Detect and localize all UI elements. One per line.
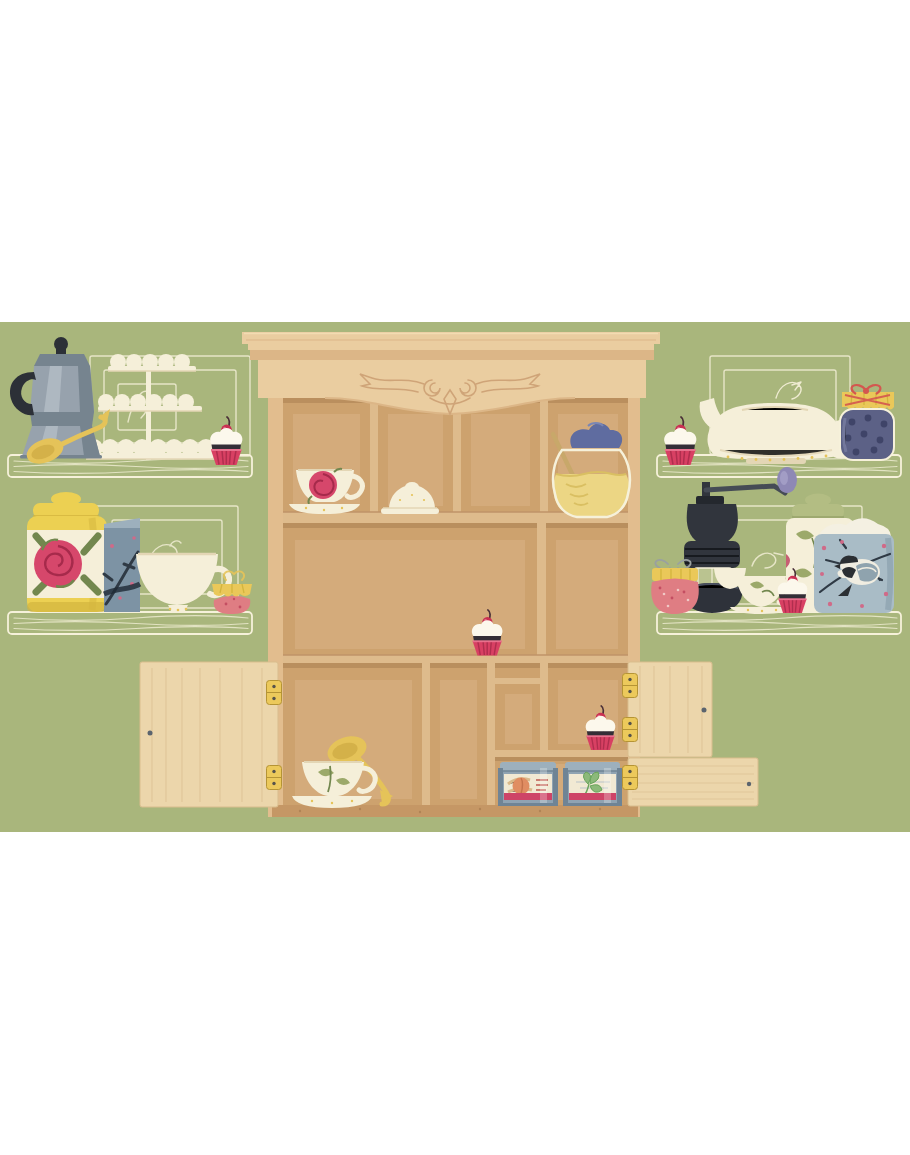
- illustration-scene: [0, 322, 910, 832]
- hinge-left-bottom: [267, 766, 282, 790]
- door-left[interactable]: [140, 662, 278, 807]
- tea-tin-peach[interactable]: [498, 762, 558, 806]
- hinge-left-top: [267, 681, 282, 705]
- tea-tin-mint[interactable]: [563, 762, 622, 806]
- rose-canister[interactable]: [27, 492, 107, 612]
- door-right-lower[interactable]: [628, 758, 758, 806]
- blueberry-jar[interactable]: [840, 385, 894, 460]
- blossom-tin[interactable]: [104, 518, 140, 612]
- illustration-canvas: [0, 322, 910, 832]
- door-right-upper[interactable]: [628, 662, 712, 757]
- hinge-right-middle: [623, 718, 638, 742]
- strawberry-jar[interactable]: [651, 560, 699, 614]
- page: [0, 0, 910, 1155]
- hinge-right-top: [623, 674, 638, 698]
- chickadee-canister[interactable]: [814, 518, 894, 613]
- hinge-right-bottom: [623, 766, 638, 790]
